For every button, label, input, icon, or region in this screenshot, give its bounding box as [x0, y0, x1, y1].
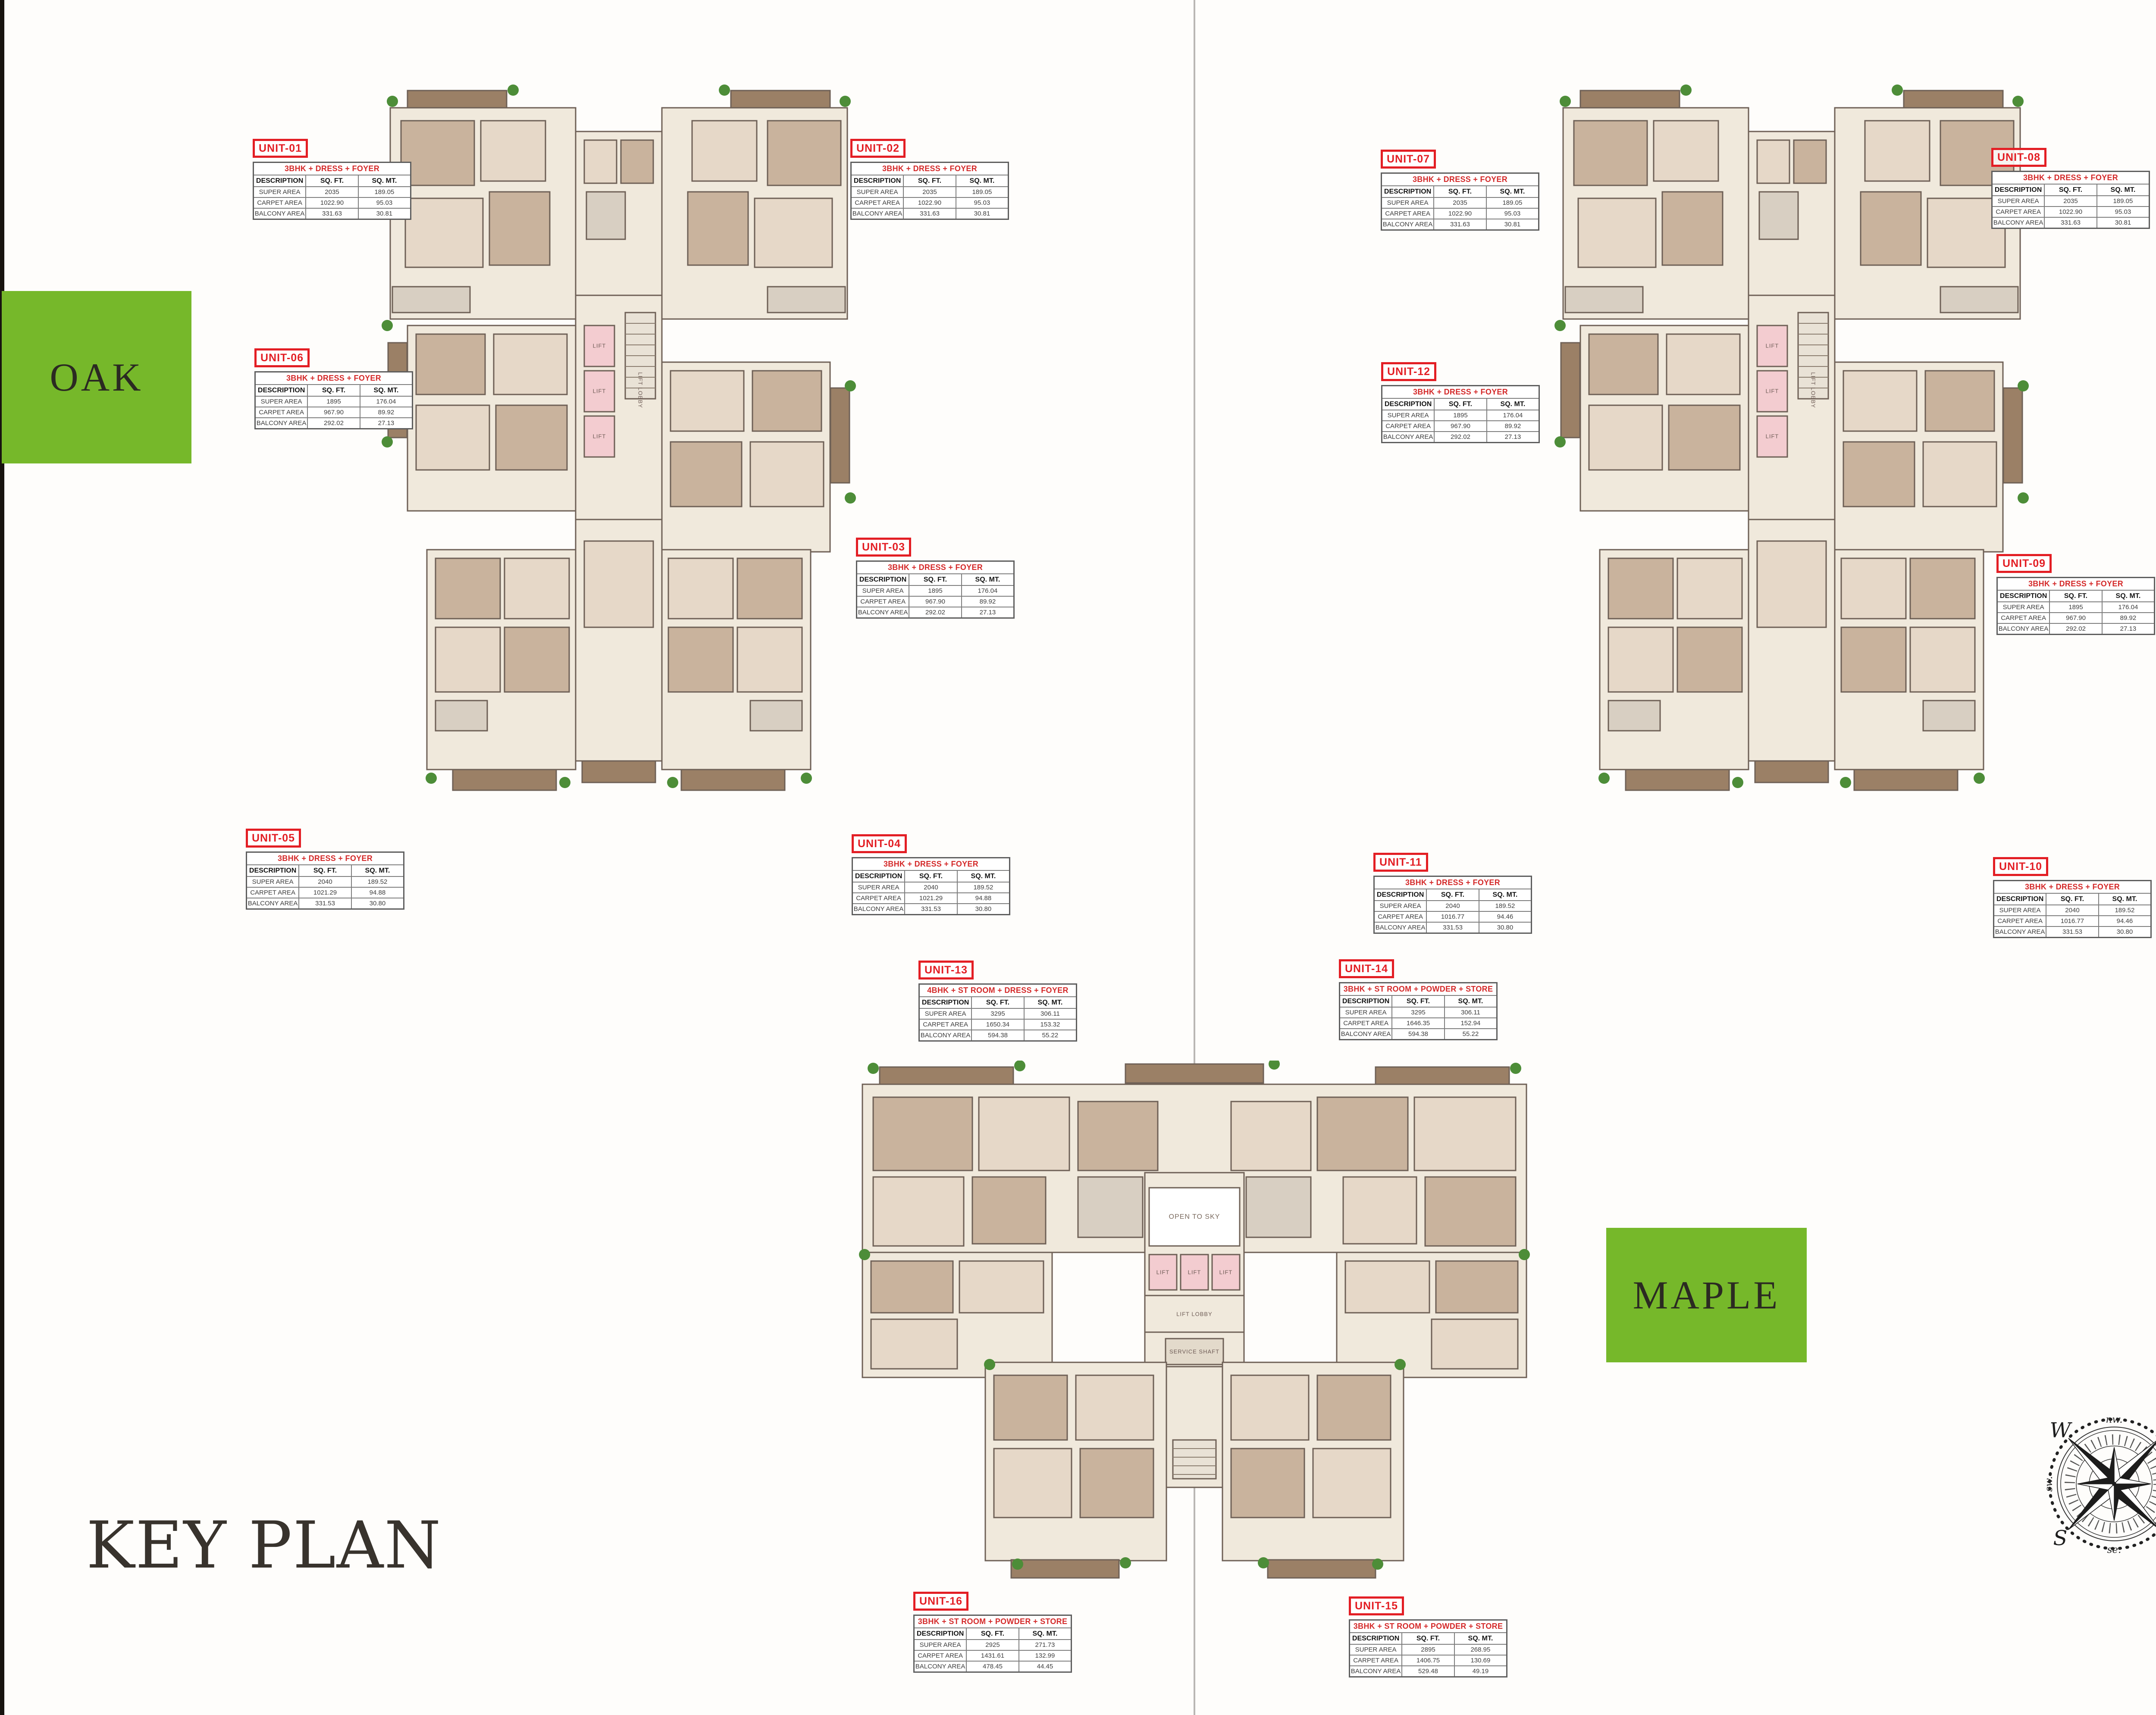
value-sqft: 1406.75: [1402, 1655, 1454, 1666]
row-label: SUPER AREA: [1992, 196, 2045, 207]
value-sqft: 2925: [966, 1640, 1019, 1650]
col-header-description: DESCRIPTION: [1994, 893, 2046, 905]
unit-type-title: 3BHK + DRESS + FOYER: [255, 372, 413, 385]
unit-id-badge: UNIT-09: [1996, 554, 2052, 573]
value-sqft: 1016.77: [2046, 916, 2099, 926]
table-row: BALCONY AREA 331.53 30.80: [247, 898, 404, 909]
value-sqft: 1895: [1434, 410, 1487, 421]
value-sqmt: 176.04: [360, 396, 413, 407]
unit-type-title: 3BHK + ST ROOM + POWDER + STORE: [1350, 1620, 1507, 1633]
unit-area-table: 3BHK + DRESS + FOYER DESCRIPTION SQ. FT.…: [246, 851, 404, 910]
value-sqmt: 27.13: [2102, 623, 2155, 635]
row-label: CARPET AREA: [1992, 207, 2045, 217]
value-sqmt: 30.80: [1479, 922, 1532, 933]
unit-area-table: 3BHK + DRESS + FOYER DESCRIPTION SQ. FT.…: [1381, 385, 1540, 443]
maple-service-shaft-label: SERVICE SHAFT: [1169, 1349, 1219, 1355]
unit-card: UNIT-05 3BHK + DRESS + FOYER DESCRIPTION…: [246, 829, 404, 910]
row-label: BALCONY AREA: [1340, 1029, 1392, 1040]
unit-card: UNIT-14 3BHK + ST ROOM + POWDER + STORE …: [1339, 959, 1498, 1040]
col-header-description: DESCRIPTION: [254, 175, 306, 187]
table-row: BALCONY AREA 331.63 30.81: [851, 208, 1009, 219]
row-label: BALCONY AREA: [247, 898, 299, 909]
col-header-sqft: SQ. FT.: [1402, 1633, 1454, 1644]
value-sqft: 1021.29: [905, 893, 957, 904]
table-row: SUPER AREA 3295 306.11: [1340, 1007, 1497, 1018]
value-sqft: 331.63: [306, 208, 358, 219]
row-label: BALCONY AREA: [1997, 623, 2050, 635]
row-label: SUPER AREA: [1350, 1644, 1402, 1655]
table-row: CARPET AREA 1022.90 95.03: [254, 197, 411, 208]
unit-type-title: 3BHK + ST ROOM + POWDER + STORE: [1340, 983, 1497, 996]
value-sqft: 3295: [1392, 1007, 1445, 1018]
row-label: CARPET AREA: [1382, 208, 1434, 219]
unit-area-table: 3BHK + ST ROOM + POWDER + STORE DESCRIPT…: [913, 1615, 1072, 1673]
value-sqmt: 89.92: [962, 596, 1014, 607]
table-row: SUPER AREA 3295 306.11: [919, 1008, 1077, 1019]
oak-label-box: OAK: [2, 291, 191, 463]
value-sqft: 967.90: [307, 407, 360, 418]
unit-card: UNIT-04 3BHK + DRESS + FOYER DESCRIPTION…: [852, 834, 1010, 915]
maple-lift-label: LIFT: [1219, 1269, 1233, 1276]
row-label: SUPER AREA: [1382, 410, 1435, 421]
col-header-description: DESCRIPTION: [852, 870, 905, 882]
unit-id-badge: UNIT-01: [253, 139, 308, 158]
compass-s: S: [2053, 1526, 2068, 1550]
value-sqmt: 30.80: [2099, 926, 2151, 938]
col-header-sqmt: SQ. MT.: [1479, 889, 1532, 901]
value-sqft: 292.02: [909, 607, 962, 618]
unit-card: UNIT-09 3BHK + DRESS + FOYER DESCRIPTION…: [1996, 554, 2155, 635]
value-sqft: 331.53: [1426, 922, 1479, 933]
value-sqmt: 153.32: [1024, 1019, 1077, 1030]
table-row: BALCONY AREA 292.02 27.13: [857, 607, 1014, 618]
unit-id-badge: UNIT-05: [246, 829, 301, 848]
row-label: CARPET AREA: [254, 197, 306, 208]
value-sqmt: 132.99: [1019, 1650, 1072, 1661]
unit-id-badge: UNIT-02: [850, 139, 906, 158]
table-row: SUPER AREA 2040 189.52: [1374, 901, 1532, 911]
value-sqft: 1016.77: [1426, 911, 1479, 922]
table-row: SUPER AREA 2040 189.52: [1994, 905, 2151, 916]
col-header-description: DESCRIPTION: [247, 865, 299, 876]
table-row: CARPET AREA 967.90 89.92: [857, 596, 1014, 607]
col-header-description: DESCRIPTION: [1997, 590, 2050, 602]
col-header-sqft: SQ. FT.: [2046, 893, 2099, 905]
unit-id-badge: UNIT-13: [918, 961, 974, 980]
col-header-description: DESCRIPTION: [255, 385, 308, 396]
value-sqmt: 306.11: [1445, 1007, 1497, 1018]
value-sqmt: 30.81: [2097, 217, 2150, 228]
value-sqmt: 27.13: [962, 607, 1014, 618]
row-label: CARPET AREA: [1994, 916, 2046, 926]
value-sqft: 967.90: [1434, 421, 1487, 432]
unit-id-badge: UNIT-06: [254, 348, 310, 367]
value-sqft: 292.02: [307, 418, 360, 429]
row-label: CARPET AREA: [1340, 1018, 1392, 1029]
value-sqft: 2040: [1426, 901, 1479, 911]
value-sqmt: 306.11: [1024, 1008, 1077, 1019]
col-header-sqmt: SQ. MT.: [1445, 995, 1497, 1007]
value-sqft: 292.02: [1434, 432, 1487, 443]
row-label: SUPER AREA: [1997, 602, 2050, 613]
col-header-sqft: SQ. FT.: [1426, 889, 1479, 901]
value-sqft: 2035: [306, 187, 358, 197]
oak-label: OAK: [50, 354, 143, 400]
row-label: CARPET AREA: [852, 893, 905, 904]
maple-label-box: MAPLE: [1606, 1228, 1807, 1362]
oak-lift-label: LIFT: [593, 388, 606, 394]
value-sqmt: 189.52: [351, 876, 404, 887]
compass-sw: sw.: [2043, 1476, 2055, 1492]
value-sqft: 2040: [2046, 905, 2099, 916]
maple-lift-lobby-label: LIFT LOBBY: [1176, 1311, 1212, 1318]
table-row: SUPER AREA 2040 189.52: [247, 876, 404, 887]
value-sqmt: 55.22: [1445, 1029, 1497, 1040]
unit-id-badge: UNIT-14: [1339, 959, 1394, 978]
value-sqmt: 189.05: [956, 187, 1009, 197]
col-header-sqmt: SQ. MT.: [1454, 1633, 1507, 1644]
value-sqmt: 130.69: [1454, 1655, 1507, 1666]
col-header-sqmt: SQ. MT.: [2097, 184, 2150, 196]
row-label: CARPET AREA: [255, 407, 308, 418]
value-sqft: 1022.90: [2044, 207, 2097, 217]
value-sqft: 967.90: [909, 596, 962, 607]
value-sqmt: 94.88: [957, 893, 1010, 904]
key-plan-page: LIFT LIFT LIFT LIFT LOBBY LIFT LIFT LIFT…: [0, 0, 2156, 1715]
value-sqmt: 95.03: [956, 197, 1009, 208]
table-row: BALCONY AREA 331.53 30.80: [1374, 922, 1532, 933]
value-sqft: 967.90: [2049, 613, 2102, 623]
table-row: CARPET AREA 1646.35 152.94: [1340, 1018, 1497, 1029]
value-sqft: 1022.90: [903, 197, 956, 208]
value-sqmt: 176.04: [962, 585, 1014, 596]
unit-type-title: 3BHK + DRESS + FOYER: [1382, 173, 1539, 186]
table-row: SUPER AREA 1895 176.04: [857, 585, 1014, 596]
col-header-sqft: SQ. FT.: [905, 870, 957, 882]
table-row: CARPET AREA 967.90 89.92: [1997, 613, 2155, 623]
row-label: CARPET AREA: [851, 197, 904, 208]
table-row: SUPER AREA 2035 189.05: [851, 187, 1009, 197]
table-row: BALCONY AREA 594.38 55.22: [919, 1030, 1077, 1041]
value-sqft: 1431.61: [966, 1650, 1019, 1661]
table-row: CARPET AREA 1022.90 95.03: [1992, 207, 2150, 217]
unit-id-badge: UNIT-15: [1349, 1596, 1404, 1615]
col-header-sqmt: SQ. MT.: [1487, 398, 1539, 410]
row-label: CARPET AREA: [919, 1019, 972, 1030]
col-header-description: DESCRIPTION: [857, 574, 909, 585]
row-label: SUPER AREA: [255, 396, 308, 407]
row-label: BALCONY AREA: [919, 1030, 972, 1041]
col-header-sqft: SQ. FT.: [966, 1628, 1019, 1640]
unit-card: UNIT-11 3BHK + DRESS + FOYER DESCRIPTION…: [1373, 853, 1532, 934]
oak-lift-lobby-label: LIFT LOBBY: [637, 372, 644, 408]
compass-w: W: [2049, 1418, 2072, 1443]
maple-open-to-sky-label: OPEN TO SKY: [1169, 1213, 1220, 1221]
row-label: SUPER AREA: [1340, 1007, 1392, 1018]
value-sqft: 1895: [307, 396, 360, 407]
value-sqmt: 189.05: [2097, 196, 2150, 207]
row-label: BALCONY AREA: [1992, 217, 2045, 228]
value-sqmt: 94.88: [351, 887, 404, 898]
row-label: BALCONY AREA: [1374, 922, 1427, 933]
value-sqft: 3295: [971, 1008, 1024, 1019]
table-row: BALCONY AREA 331.63 30.81: [1992, 217, 2150, 228]
value-sqft: 529.48: [1402, 1666, 1454, 1677]
row-label: SUPER AREA: [851, 187, 904, 197]
value-sqmt: 152.94: [1445, 1018, 1497, 1029]
table-row: SUPER AREA 2040 189.52: [852, 882, 1010, 893]
value-sqft: 1022.90: [1434, 208, 1486, 219]
unit-id-badge: UNIT-10: [1993, 857, 2048, 876]
value-sqft: 1646.35: [1392, 1018, 1445, 1029]
olive-lift-label: LIFT: [1766, 433, 1779, 440]
row-label: BALCONY AREA: [1994, 926, 2046, 938]
unit-type-title: 3BHK + DRESS + FOYER: [247, 852, 404, 865]
col-header-sqft: SQ. FT.: [307, 385, 360, 396]
unit-area-table: 3BHK + DRESS + FOYER DESCRIPTION SQ. FT.…: [856, 560, 1015, 619]
table-row: SUPER AREA 2895 268.95: [1350, 1644, 1507, 1655]
value-sqft: 594.38: [971, 1030, 1024, 1041]
unit-card: UNIT-13 4BHK + ST ROOM + DRESS + FOYER D…: [918, 961, 1077, 1042]
value-sqmt: 55.22: [1024, 1030, 1077, 1041]
value-sqft: 2040: [299, 876, 351, 887]
col-header-sqmt: SQ. MT.: [1019, 1628, 1072, 1640]
value-sqft: 478.45: [966, 1661, 1019, 1672]
value-sqft: 2040: [905, 882, 957, 893]
value-sqmt: 89.92: [2102, 613, 2155, 623]
value-sqft: 331.63: [2044, 217, 2097, 228]
unit-card: UNIT-15 3BHK + ST ROOM + POWDER + STORE …: [1349, 1596, 1507, 1677]
col-header-sqmt: SQ. MT.: [957, 870, 1010, 882]
table-row: CARPET AREA 1021.29 94.88: [852, 893, 1010, 904]
unit-id-badge: UNIT-08: [1991, 148, 2046, 167]
unit-type-title: 3BHK + DRESS + FOYER: [1374, 876, 1532, 889]
table-row: CARPET AREA 1016.77 94.46: [1994, 916, 2151, 926]
row-label: BALCONY AREA: [1350, 1666, 1402, 1677]
unit-area-table: 3BHK + DRESS + FOYER DESCRIPTION SQ. FT.…: [1373, 876, 1532, 934]
unit-card: UNIT-06 3BHK + DRESS + FOYER DESCRIPTION…: [254, 348, 413, 429]
page-title: KEY PLAN: [86, 1508, 442, 1583]
value-sqmt: 189.05: [1486, 197, 1539, 208]
unit-id-badge: UNIT-03: [856, 538, 911, 557]
row-label: BALCONY AREA: [1382, 432, 1435, 443]
unit-area-table: 3BHK + DRESS + FOYER DESCRIPTION SQ. FT.…: [1381, 172, 1539, 231]
value-sqmt: 30.81: [1486, 219, 1539, 230]
col-header-sqmt: SQ. MT.: [2102, 590, 2155, 602]
value-sqft: 2895: [1402, 1644, 1454, 1655]
col-header-sqft: SQ. FT.: [299, 865, 351, 876]
unit-type-title: 3BHK + DRESS + FOYER: [857, 561, 1014, 574]
table-row: CARPET AREA 967.90 89.92: [1382, 421, 1539, 432]
value-sqft: 1650.34: [971, 1019, 1024, 1030]
col-header-sqmt: SQ. MT.: [360, 385, 413, 396]
unit-card: UNIT-03 3BHK + DRESS + FOYER DESCRIPTION…: [856, 538, 1015, 619]
value-sqmt: 49.19: [1454, 1666, 1507, 1677]
col-header-sqmt: SQ. MT.: [962, 574, 1014, 585]
row-label: CARPET AREA: [1350, 1655, 1402, 1666]
table-row: SUPER AREA 1895 176.04: [1997, 602, 2155, 613]
maple-label: MAPLE: [1633, 1272, 1780, 1318]
value-sqmt: 30.80: [351, 898, 404, 909]
row-label: SUPER AREA: [1994, 905, 2046, 916]
col-header-sqmt: SQ. MT.: [1024, 997, 1077, 1008]
unit-area-table: 3BHK + DRESS + FOYER DESCRIPTION SQ. FT.…: [1991, 171, 2150, 229]
value-sqmt: 268.95: [1454, 1644, 1507, 1655]
row-label: SUPER AREA: [254, 187, 306, 197]
value-sqft: 331.53: [299, 898, 351, 909]
maple-lift-label: LIFT: [1156, 1269, 1170, 1276]
table-row: BALCONY AREA 331.63 30.81: [254, 208, 411, 219]
unit-card: UNIT-02 3BHK + DRESS + FOYER DESCRIPTION…: [850, 139, 1009, 220]
col-header-description: DESCRIPTION: [914, 1628, 967, 1640]
table-row: BALCONY AREA 292.02 27.13: [1997, 623, 2155, 635]
unit-type-title: 3BHK + ST ROOM + POWDER + STORE: [914, 1615, 1072, 1628]
value-sqmt: 95.03: [2097, 207, 2150, 217]
compass-se: se.: [2107, 1544, 2122, 1555]
value-sqmt: 189.52: [2099, 905, 2151, 916]
value-sqft: 1022.90: [306, 197, 358, 208]
col-header-description: DESCRIPTION: [1340, 995, 1392, 1007]
unit-card: UNIT-01 3BHK + DRESS + FOYER DESCRIPTION…: [253, 139, 411, 220]
unit-area-table: 3BHK + DRESS + FOYER DESCRIPTION SQ. FT.…: [852, 857, 1010, 915]
row-label: CARPET AREA: [914, 1650, 967, 1661]
value-sqmt: 27.13: [360, 418, 413, 429]
maple-lift-label: LIFT: [1188, 1269, 1201, 1276]
unit-type-title: 3BHK + DRESS + FOYER: [852, 858, 1010, 871]
unit-card: UNIT-08 3BHK + DRESS + FOYER DESCRIPTION…: [1991, 148, 2150, 229]
value-sqft: 331.63: [1434, 219, 1486, 230]
unit-card: UNIT-12 3BHK + DRESS + FOYER DESCRIPTION…: [1381, 362, 1540, 443]
table-row: CARPET AREA 1016.77 94.46: [1374, 911, 1532, 922]
table-row: CARPET AREA 967.90 89.92: [255, 407, 413, 418]
table-row: BALCONY AREA 331.53 30.80: [852, 904, 1010, 915]
table-row: BALCONY AREA 331.53 30.80: [1994, 926, 2151, 938]
unit-area-table: 3BHK + DRESS + FOYER DESCRIPTION SQ. FT.…: [850, 162, 1009, 220]
value-sqmt: 27.13: [1487, 432, 1539, 443]
table-row: BALCONY AREA 594.38 55.22: [1340, 1029, 1497, 1040]
unit-type-title: 3BHK + DRESS + FOYER: [1997, 578, 2155, 591]
col-header-sqmt: SQ. MT.: [358, 175, 411, 187]
row-label: SUPER AREA: [1374, 901, 1427, 911]
row-label: CARPET AREA: [857, 596, 909, 607]
oak-floor-plan: [367, 84, 871, 903]
row-label: BALCONY AREA: [852, 904, 905, 915]
value-sqft: 2035: [2044, 196, 2097, 207]
row-label: CARPET AREA: [1997, 613, 2050, 623]
table-row: CARPET AREA 1021.29 94.88: [247, 887, 404, 898]
col-header-description: DESCRIPTION: [851, 175, 904, 187]
table-row: BALCONY AREA 478.45 44.45: [914, 1661, 1072, 1672]
unit-card: UNIT-07 3BHK + DRESS + FOYER DESCRIPTION…: [1381, 150, 1539, 231]
row-label: BALCONY AREA: [857, 607, 909, 618]
value-sqft: 1895: [909, 585, 962, 596]
col-header-description: DESCRIPTION: [1382, 398, 1435, 410]
unit-area-table: 3BHK + DRESS + FOYER DESCRIPTION SQ. FT.…: [253, 162, 411, 220]
col-header-description: DESCRIPTION: [1992, 184, 2045, 196]
table-row: SUPER AREA 2035 189.05: [1992, 196, 2150, 207]
row-label: BALCONY AREA: [255, 418, 308, 429]
value-sqmt: 271.73: [1019, 1640, 1072, 1650]
table-row: BALCONY AREA 529.48 49.19: [1350, 1666, 1507, 1677]
value-sqmt: 30.80: [957, 904, 1010, 915]
col-header-sqft: SQ. FT.: [909, 574, 962, 585]
unit-id-badge: UNIT-16: [913, 1592, 968, 1611]
table-row: CARPET AREA 1022.90 95.03: [851, 197, 1009, 208]
col-header-sqmt: SQ. MT.: [956, 175, 1009, 187]
row-label: BALCONY AREA: [254, 208, 306, 219]
value-sqft: 2035: [903, 187, 956, 197]
unit-type-title: 3BHK + DRESS + FOYER: [851, 163, 1009, 175]
table-row: SUPER AREA 1895 176.04: [255, 396, 413, 407]
col-header-sqft: SQ. FT.: [1392, 995, 1445, 1007]
row-label: CARPET AREA: [1374, 911, 1427, 922]
col-header-sqft: SQ. FT.: [903, 175, 956, 187]
unit-type-title: 3BHK + DRESS + FOYER: [1382, 386, 1539, 399]
compass-rose-icon: W N E S nw. ne. se. sw.: [2037, 1406, 2156, 1562]
unit-type-title: 3BHK + DRESS + FOYER: [254, 163, 411, 175]
col-header-sqft: SQ. FT.: [1434, 186, 1486, 197]
olive-lift-label: LIFT: [1766, 388, 1779, 394]
col-header-sqft: SQ. FT.: [306, 175, 358, 187]
value-sqmt: 95.03: [358, 197, 411, 208]
table-row: BALCONY AREA 292.02 27.13: [255, 418, 413, 429]
maple-floor-plan: [847, 1061, 1542, 1580]
unit-id-badge: UNIT-04: [852, 834, 907, 853]
col-header-description: DESCRIPTION: [1374, 889, 1427, 901]
value-sqmt: 30.81: [956, 208, 1009, 219]
unit-card: UNIT-16 3BHK + ST ROOM + POWDER + STORE …: [913, 1592, 1072, 1673]
value-sqmt: 176.04: [1487, 410, 1539, 421]
col-header-sqft: SQ. FT.: [971, 997, 1024, 1008]
table-row: CARPET AREA 1022.90 95.03: [1382, 208, 1539, 219]
row-label: SUPER AREA: [914, 1640, 967, 1650]
unit-type-title: 3BHK + DRESS + FOYER: [1992, 172, 2150, 185]
col-header-description: DESCRIPTION: [919, 997, 972, 1008]
table-row: BALCONY AREA 331.63 30.81: [1382, 219, 1539, 230]
olive-lift-label: LIFT: [1766, 343, 1779, 349]
col-header-sqft: SQ. FT.: [1434, 398, 1487, 410]
col-header-description: DESCRIPTION: [1350, 1633, 1402, 1644]
table-row: CARPET AREA 1650.34 153.32: [919, 1019, 1077, 1030]
value-sqmt: 94.46: [2099, 916, 2151, 926]
value-sqmt: 189.52: [1479, 901, 1532, 911]
col-header-description: DESCRIPTION: [1382, 186, 1434, 197]
row-label: SUPER AREA: [852, 882, 905, 893]
value-sqft: 331.53: [2046, 926, 2099, 938]
table-row: SUPER AREA 2925 271.73: [914, 1640, 1072, 1650]
unit-area-table: 3BHK + DRESS + FOYER DESCRIPTION SQ. FT.…: [1996, 577, 2155, 635]
value-sqft: 331.53: [905, 904, 957, 915]
olive-floor-plan: [1539, 84, 2044, 903]
row-label: CARPET AREA: [1382, 421, 1435, 432]
table-row: BALCONY AREA 292.02 27.13: [1382, 432, 1539, 443]
page-left-edge: [0, 0, 4, 1715]
value-sqft: 1895: [2049, 602, 2102, 613]
table-row: SUPER AREA 1895 176.04: [1382, 410, 1539, 421]
unit-id-badge: UNIT-07: [1381, 150, 1436, 169]
value-sqft: 1021.29: [299, 887, 351, 898]
value-sqmt: 44.45: [1019, 1661, 1072, 1672]
col-header-sqft: SQ. FT.: [2049, 590, 2102, 602]
value-sqmt: 176.04: [2102, 602, 2155, 613]
olive-lift-lobby-label: LIFT LOBBY: [1810, 372, 1817, 408]
value-sqft: 2035: [1434, 197, 1486, 208]
row-label: CARPET AREA: [247, 887, 299, 898]
table-row: SUPER AREA 2035 189.05: [1382, 197, 1539, 208]
value-sqmt: 30.81: [358, 208, 411, 219]
value-sqmt: 189.05: [358, 187, 411, 197]
value-sqft: 292.02: [2049, 623, 2102, 635]
